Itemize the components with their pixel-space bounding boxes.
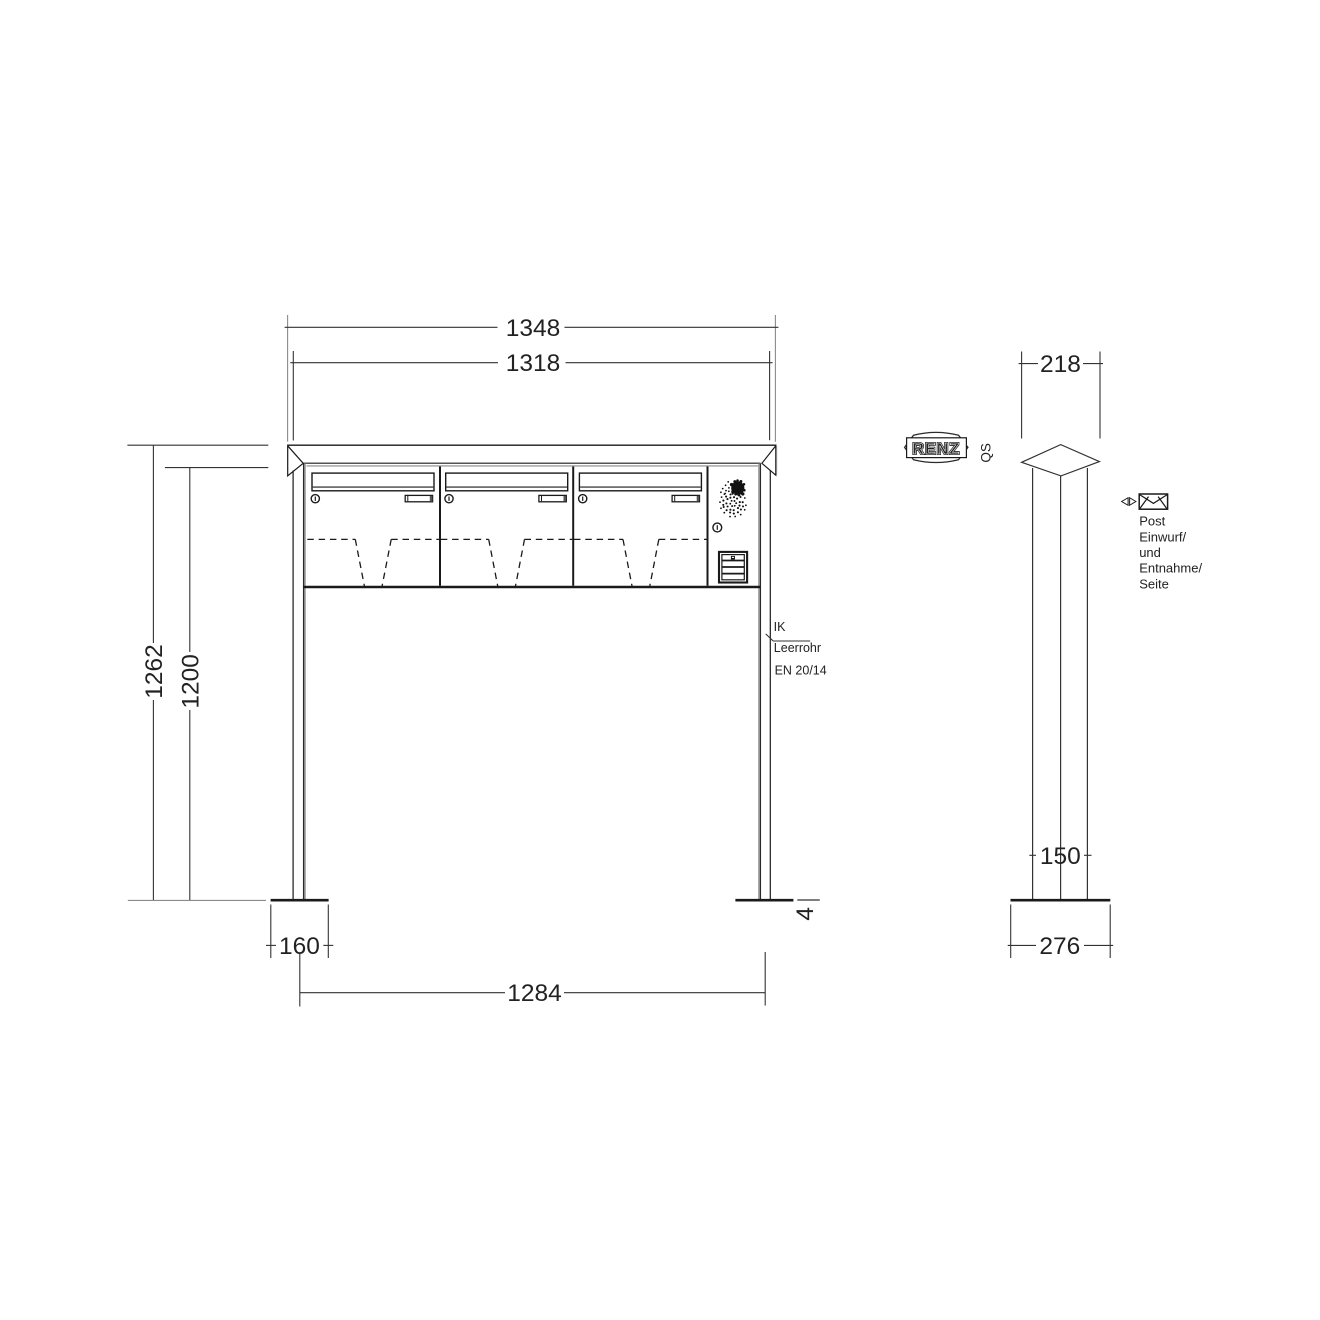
svg-text:1200: 1200 — [177, 654, 204, 709]
svg-text:QS: QS — [979, 443, 994, 463]
svg-text:1284: 1284 — [507, 980, 562, 1007]
svg-text:150: 150 — [1040, 843, 1081, 870]
svg-text:1348: 1348 — [506, 315, 561, 342]
svg-text:Post: Post — [1139, 514, 1165, 529]
svg-text:1318: 1318 — [506, 350, 561, 377]
svg-text:Seite: Seite — [1139, 576, 1169, 591]
svg-text:Einwurf/: Einwurf/ — [1139, 529, 1186, 544]
svg-text:276: 276 — [1039, 933, 1080, 960]
svg-text:RENZ: RENZ — [912, 441, 960, 458]
svg-text:218: 218 — [1040, 351, 1081, 378]
svg-text:IK: IK — [774, 620, 786, 634]
svg-text:1262: 1262 — [141, 644, 168, 699]
svg-text:Leerrohr: Leerrohr — [774, 641, 821, 655]
svg-text:EN 20/14: EN 20/14 — [775, 664, 827, 678]
svg-text:und: und — [1139, 545, 1161, 560]
svg-text:4: 4 — [792, 907, 819, 921]
svg-text:Entnahme/: Entnahme/ — [1139, 561, 1202, 576]
